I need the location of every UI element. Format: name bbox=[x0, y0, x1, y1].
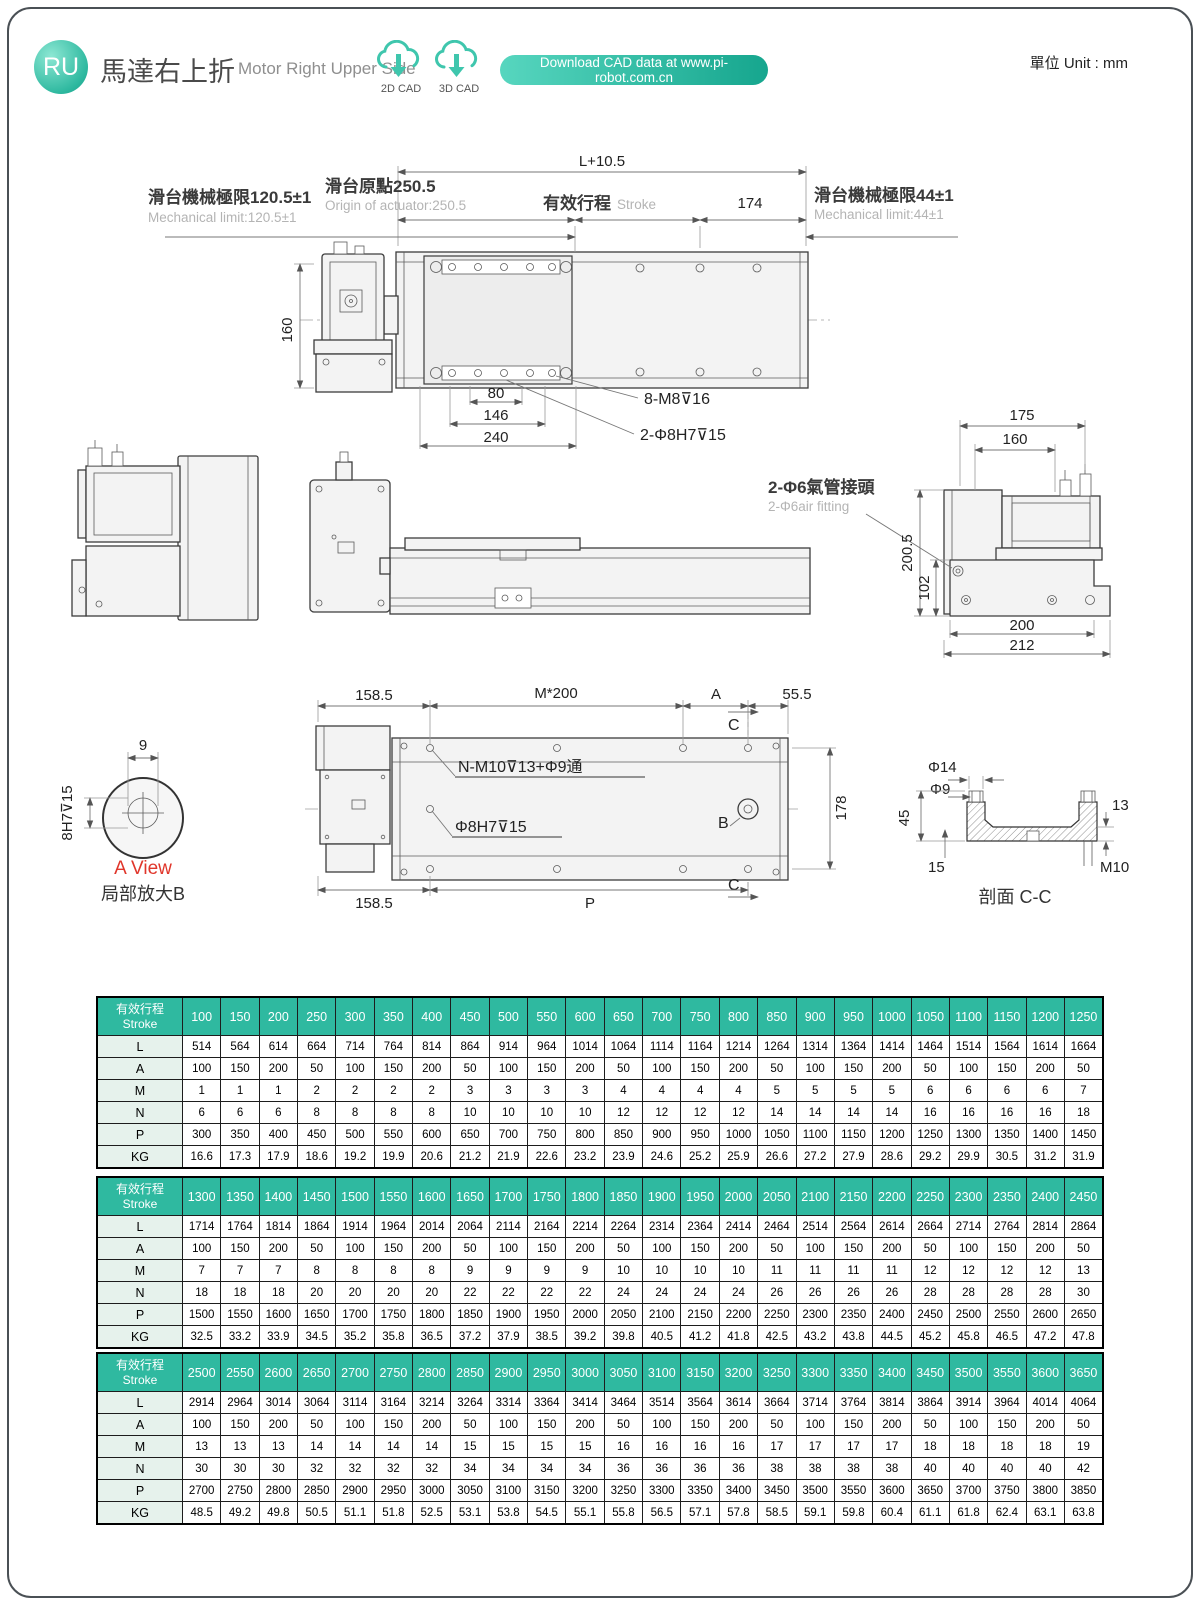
stroke-col-header: 3050 bbox=[604, 1353, 642, 1392]
value-cell: 32.5 bbox=[183, 1326, 221, 1349]
value-cell: 24 bbox=[643, 1282, 681, 1304]
value-cell: 19.2 bbox=[336, 1146, 374, 1169]
dim-158-5-top: 158.5 bbox=[355, 687, 393, 704]
value-cell: 13 bbox=[259, 1436, 297, 1458]
stroke-col-header: 3250 bbox=[758, 1353, 796, 1392]
row-label: L bbox=[97, 1216, 183, 1238]
value-cell: 6 bbox=[911, 1080, 949, 1102]
dim-total-length: L+10.5 bbox=[579, 153, 625, 170]
dim-178: 178 bbox=[833, 795, 850, 820]
value-cell: 10 bbox=[604, 1260, 642, 1282]
value-cell: 2200 bbox=[719, 1304, 757, 1326]
stroke-col-header: 3100 bbox=[643, 1353, 681, 1392]
value-cell: 800 bbox=[566, 1124, 604, 1146]
value-cell: 5 bbox=[796, 1080, 834, 1102]
value-cell: 3750 bbox=[988, 1480, 1026, 1502]
dim-p: P bbox=[585, 895, 595, 912]
table-row-m: M111222233334444555566667 bbox=[97, 1080, 1103, 1102]
value-cell: 50 bbox=[298, 1058, 336, 1080]
dim-160-vertical: 160 bbox=[279, 317, 296, 342]
row-label: N bbox=[97, 1102, 183, 1124]
value-cell: 41.2 bbox=[681, 1326, 719, 1349]
value-cell: 100 bbox=[336, 1414, 374, 1436]
value-cell: 14 bbox=[298, 1436, 336, 1458]
label-n-m10: N-M10⊽13+Φ9通 bbox=[458, 758, 583, 776]
value-cell: 53.8 bbox=[489, 1502, 527, 1525]
dim-15: 15 bbox=[928, 859, 945, 876]
value-cell: 3 bbox=[566, 1080, 604, 1102]
value-cell: 53.1 bbox=[451, 1502, 489, 1525]
value-cell: 2 bbox=[374, 1080, 412, 1102]
value-cell: 3414 bbox=[566, 1392, 604, 1414]
value-cell: 6 bbox=[221, 1102, 259, 1124]
value-cell: 2 bbox=[413, 1080, 451, 1102]
value-cell: 4064 bbox=[1064, 1392, 1103, 1414]
stroke-col-header: 2950 bbox=[528, 1353, 566, 1392]
value-cell: 1850 bbox=[451, 1304, 489, 1326]
value-cell: 2564 bbox=[834, 1216, 872, 1238]
value-cell: 150 bbox=[834, 1238, 872, 1260]
value-cell: 54.5 bbox=[528, 1502, 566, 1525]
value-cell: 3764 bbox=[834, 1392, 872, 1414]
value-cell: 100 bbox=[643, 1238, 681, 1260]
value-cell: 58.5 bbox=[758, 1502, 796, 1525]
value-cell: 18 bbox=[221, 1282, 259, 1304]
value-cell: 35.2 bbox=[336, 1326, 374, 1349]
value-cell: 6 bbox=[259, 1102, 297, 1124]
stroke-col-header: 3400 bbox=[873, 1353, 911, 1392]
value-cell: 34 bbox=[566, 1458, 604, 1480]
value-cell: 24.6 bbox=[643, 1146, 681, 1169]
stroke-col-header: 1650 bbox=[451, 1177, 489, 1216]
value-cell: 200 bbox=[873, 1058, 911, 1080]
value-cell: 200 bbox=[1026, 1414, 1064, 1436]
value-cell: 3200 bbox=[566, 1480, 604, 1502]
value-cell: 1300 bbox=[949, 1124, 987, 1146]
value-cell: 150 bbox=[988, 1238, 1026, 1260]
value-cell: 2800 bbox=[259, 1480, 297, 1502]
value-cell: 200 bbox=[413, 1238, 451, 1260]
label-phi8h7: Φ8H7⊽15 bbox=[455, 819, 527, 836]
value-cell: 29.2 bbox=[911, 1146, 949, 1169]
value-cell: 1414 bbox=[873, 1036, 911, 1058]
value-cell: 19.9 bbox=[374, 1146, 412, 1169]
front-view bbox=[310, 452, 810, 614]
bottom-view: 158.5 M*200 A 55.5 C C N-M10⊽13+Φ9通 Φ8H7… bbox=[305, 685, 850, 912]
value-cell: 20 bbox=[413, 1282, 451, 1304]
value-cell: 26 bbox=[758, 1282, 796, 1304]
stroke-col-header: 3600 bbox=[1026, 1353, 1064, 1392]
stroke-col-header: 300 bbox=[336, 997, 374, 1036]
value-cell: 2314 bbox=[643, 1216, 681, 1238]
table-row-p: P270027502800285029002950300030503100315… bbox=[97, 1480, 1103, 1502]
value-cell: 1614 bbox=[1026, 1036, 1064, 1058]
table-row-kg: KG48.549.249.850.551.151.852.553.153.854… bbox=[97, 1502, 1103, 1525]
dim-200: 200 bbox=[1009, 617, 1034, 634]
table-row-l: L514564614664714764814864914964101410641… bbox=[97, 1036, 1103, 1058]
value-cell: 50 bbox=[604, 1058, 642, 1080]
dim-phi9: Φ9 bbox=[930, 781, 950, 798]
value-cell: 100 bbox=[183, 1238, 221, 1260]
value-cell: 3300 bbox=[643, 1480, 681, 1502]
value-cell: 28.6 bbox=[873, 1146, 911, 1169]
value-cell: 100 bbox=[183, 1414, 221, 1436]
value-cell: 150 bbox=[834, 1058, 872, 1080]
value-cell: 614 bbox=[259, 1036, 297, 1058]
stroke-col-header: 1850 bbox=[604, 1177, 642, 1216]
value-cell: 38 bbox=[758, 1458, 796, 1480]
value-cell: 3314 bbox=[489, 1392, 527, 1414]
a-view-detail: 9 8H7⊽15 A View 局部放大B bbox=[59, 737, 185, 904]
value-cell: 25.2 bbox=[681, 1146, 719, 1169]
value-cell: 1114 bbox=[643, 1036, 681, 1058]
value-cell: 100 bbox=[183, 1058, 221, 1080]
row-label: A bbox=[97, 1238, 183, 1260]
value-cell: 6 bbox=[988, 1080, 1026, 1102]
table-row-a: A100150200501001502005010015020050100150… bbox=[97, 1238, 1103, 1260]
stroke-table-1: 有效行程Stroke100150200250300350400450500550… bbox=[96, 996, 1104, 1169]
value-cell: 10 bbox=[489, 1102, 527, 1124]
stroke-col-header: 150 bbox=[221, 997, 259, 1036]
value-cell: 8 bbox=[413, 1260, 451, 1282]
value-cell: 3114 bbox=[336, 1392, 374, 1414]
value-cell: 1864 bbox=[298, 1216, 336, 1238]
value-cell: 50 bbox=[911, 1238, 949, 1260]
table-row-kg: KG32.533.233.934.535.235.836.537.237.938… bbox=[97, 1326, 1103, 1349]
value-cell: 1514 bbox=[949, 1036, 987, 1058]
value-cell: 1700 bbox=[336, 1304, 374, 1326]
value-cell: 2350 bbox=[834, 1304, 872, 1326]
value-cell: 36 bbox=[681, 1458, 719, 1480]
stroke-col-header: 2250 bbox=[911, 1177, 949, 1216]
value-cell: 42 bbox=[1064, 1458, 1103, 1480]
value-cell: 50 bbox=[1064, 1058, 1103, 1080]
stroke-col-header: 1900 bbox=[643, 1177, 681, 1216]
value-cell: 50 bbox=[911, 1414, 949, 1436]
value-cell: 3964 bbox=[988, 1392, 1026, 1414]
value-cell: 11 bbox=[834, 1260, 872, 1282]
stroke-col-header: 2050 bbox=[758, 1177, 796, 1216]
value-cell: 11 bbox=[873, 1260, 911, 1282]
stroke-col-header: 2850 bbox=[451, 1353, 489, 1392]
value-cell: 17.9 bbox=[259, 1146, 297, 1169]
value-cell: 1264 bbox=[758, 1036, 796, 1058]
value-cell: 47.8 bbox=[1064, 1326, 1103, 1349]
stroke-col-header: 1500 bbox=[336, 1177, 374, 1216]
stroke-col-header: 2800 bbox=[413, 1353, 451, 1392]
value-cell: 32 bbox=[336, 1458, 374, 1480]
value-cell: 15 bbox=[528, 1436, 566, 1458]
value-cell: 32 bbox=[413, 1458, 451, 1480]
value-cell: 41.8 bbox=[719, 1326, 757, 1349]
value-cell: 1550 bbox=[221, 1304, 259, 1326]
value-cell: 50 bbox=[758, 1414, 796, 1436]
value-cell: 150 bbox=[681, 1058, 719, 1080]
value-cell: 36 bbox=[719, 1458, 757, 1480]
table-row-a: A100150200501001502005010015020050100150… bbox=[97, 1058, 1103, 1080]
value-cell: 200 bbox=[719, 1238, 757, 1260]
value-cell: 150 bbox=[374, 1058, 412, 1080]
stroke-col-header: 800 bbox=[719, 997, 757, 1036]
stroke-col-header: 3150 bbox=[681, 1353, 719, 1392]
value-cell: 3350 bbox=[681, 1480, 719, 1502]
value-cell: 100 bbox=[796, 1414, 834, 1436]
value-cell: 1200 bbox=[873, 1124, 911, 1146]
stroke-col-header: 3650 bbox=[1064, 1353, 1103, 1392]
value-cell: 100 bbox=[336, 1238, 374, 1260]
stroke-col-header: 3500 bbox=[949, 1353, 987, 1392]
value-cell: 28 bbox=[1026, 1282, 1064, 1304]
value-cell: 49.8 bbox=[259, 1502, 297, 1525]
origin-label-en: Origin of actuator:250.5 bbox=[325, 198, 466, 213]
value-cell: 1750 bbox=[374, 1304, 412, 1326]
value-cell: 10 bbox=[643, 1260, 681, 1282]
value-cell: 50 bbox=[451, 1058, 489, 1080]
dim-45: 45 bbox=[896, 810, 913, 827]
value-cell: 850 bbox=[604, 1124, 642, 1146]
value-cell: 150 bbox=[528, 1238, 566, 1260]
table-row-n: N666888810101010121212121414141416161616… bbox=[97, 1102, 1103, 1124]
value-cell: 3 bbox=[489, 1080, 527, 1102]
value-cell: 3500 bbox=[796, 1480, 834, 1502]
value-cell: 34 bbox=[528, 1458, 566, 1480]
value-cell: 31.2 bbox=[1026, 1146, 1064, 1169]
value-cell: 1350 bbox=[988, 1124, 1026, 1146]
value-cell: 27.2 bbox=[796, 1146, 834, 1169]
limit-left-zh: 滑台機械極限120.5±1 bbox=[148, 187, 311, 207]
value-cell: 100 bbox=[949, 1058, 987, 1080]
value-cell: 150 bbox=[221, 1058, 259, 1080]
value-cell: 3050 bbox=[451, 1480, 489, 1502]
value-cell: 3514 bbox=[643, 1392, 681, 1414]
label-2-phi8h7: 2-Φ8H7⊽15 bbox=[640, 427, 726, 444]
value-cell: 45.2 bbox=[911, 1326, 949, 1349]
value-cell: 52.5 bbox=[413, 1502, 451, 1525]
section-cc: Φ14 Φ9 45 15 13 M10 剖面 C-C bbox=[896, 759, 1129, 907]
stroke-col-header: 1400 bbox=[259, 1177, 297, 1216]
value-cell: 9 bbox=[489, 1260, 527, 1282]
stroke-col-header: 1250 bbox=[1064, 997, 1103, 1036]
stroke-col-header: 1550 bbox=[374, 1177, 412, 1216]
stroke-col-header: 1100 bbox=[949, 997, 987, 1036]
stroke-col-header: 2200 bbox=[873, 1177, 911, 1216]
value-cell: 18 bbox=[183, 1282, 221, 1304]
a-view-subtitle: 局部放大B bbox=[101, 884, 185, 904]
value-cell: 1400 bbox=[1026, 1124, 1064, 1146]
value-cell: 2700 bbox=[183, 1480, 221, 1502]
value-cell: 12 bbox=[988, 1260, 1026, 1282]
stroke-col-header: 1000 bbox=[873, 997, 911, 1036]
value-cell: 13 bbox=[221, 1436, 259, 1458]
value-cell: 664 bbox=[298, 1036, 336, 1058]
section-c-top: C bbox=[728, 717, 740, 734]
value-cell: 16 bbox=[604, 1436, 642, 1458]
value-cell: 100 bbox=[489, 1414, 527, 1436]
value-cell: 1464 bbox=[911, 1036, 949, 1058]
value-cell: 10 bbox=[451, 1102, 489, 1124]
value-cell: 32 bbox=[374, 1458, 412, 1480]
value-cell: 2050 bbox=[604, 1304, 642, 1326]
limit-right-en: Mechanical limit:44±1 bbox=[814, 207, 944, 222]
value-cell: 17 bbox=[796, 1436, 834, 1458]
value-cell: 2064 bbox=[451, 1216, 489, 1238]
value-cell: 1564 bbox=[988, 1036, 1026, 1058]
value-cell: 34 bbox=[489, 1458, 527, 1480]
value-cell: 12 bbox=[681, 1102, 719, 1124]
value-cell: 200 bbox=[1026, 1238, 1064, 1260]
value-cell: 150 bbox=[221, 1238, 259, 1260]
stroke-col-header: 3550 bbox=[988, 1353, 1026, 1392]
value-cell: 2914 bbox=[183, 1392, 221, 1414]
value-cell: 23.2 bbox=[566, 1146, 604, 1169]
value-cell: 44.5 bbox=[873, 1326, 911, 1349]
value-cell: 150 bbox=[528, 1058, 566, 1080]
value-cell: 15 bbox=[489, 1436, 527, 1458]
value-cell: 26 bbox=[796, 1282, 834, 1304]
row-label: N bbox=[97, 1458, 183, 1480]
value-cell: 26 bbox=[834, 1282, 872, 1304]
value-cell: 56.5 bbox=[643, 1502, 681, 1525]
dim-13: 13 bbox=[1112, 797, 1129, 814]
value-cell: 47.2 bbox=[1026, 1326, 1064, 1349]
value-cell: 14 bbox=[873, 1102, 911, 1124]
value-cell: 2100 bbox=[643, 1304, 681, 1326]
value-cell: 22 bbox=[566, 1282, 604, 1304]
value-cell: 6 bbox=[949, 1080, 987, 1102]
stroke-col-header: 1200 bbox=[1026, 997, 1064, 1036]
value-cell: 1050 bbox=[758, 1124, 796, 1146]
value-cell: 2814 bbox=[1026, 1216, 1064, 1238]
stroke-col-header: 750 bbox=[681, 997, 719, 1036]
value-cell: 30 bbox=[1064, 1282, 1103, 1304]
table-row-l: L171417641814186419141964201420642114216… bbox=[97, 1216, 1103, 1238]
value-cell: 8 bbox=[374, 1260, 412, 1282]
value-cell: 16 bbox=[643, 1436, 681, 1458]
left-end-view bbox=[72, 440, 258, 620]
value-cell: 16 bbox=[949, 1102, 987, 1124]
value-cell: 150 bbox=[374, 1238, 412, 1260]
value-cell: 30 bbox=[183, 1458, 221, 1480]
value-cell: 34 bbox=[451, 1458, 489, 1480]
value-cell: 3 bbox=[528, 1080, 566, 1102]
air-fitting-zh: 2-Φ6氣管接頭 bbox=[768, 477, 876, 497]
stroke-col-header: 2400 bbox=[1026, 1177, 1064, 1216]
value-cell: 3664 bbox=[758, 1392, 796, 1414]
value-cell: 600 bbox=[413, 1124, 451, 1146]
value-cell: 2900 bbox=[336, 1480, 374, 1502]
value-cell: 60.4 bbox=[873, 1502, 911, 1525]
value-cell: 42.5 bbox=[758, 1326, 796, 1349]
value-cell: 9 bbox=[566, 1260, 604, 1282]
value-cell: 63.8 bbox=[1064, 1502, 1103, 1525]
value-cell: 32 bbox=[298, 1458, 336, 1480]
value-cell: 22.6 bbox=[528, 1146, 566, 1169]
table-row-n: N303030323232323434343436363636383838384… bbox=[97, 1458, 1103, 1480]
value-cell: 300 bbox=[183, 1124, 221, 1146]
value-cell: 2000 bbox=[566, 1304, 604, 1326]
value-cell: 1 bbox=[183, 1080, 221, 1102]
value-cell: 200 bbox=[566, 1058, 604, 1080]
value-cell: 39.8 bbox=[604, 1326, 642, 1349]
value-cell: 12 bbox=[604, 1102, 642, 1124]
value-cell: 18.6 bbox=[298, 1146, 336, 1169]
value-cell: 45.8 bbox=[949, 1326, 987, 1349]
value-cell: 764 bbox=[374, 1036, 412, 1058]
value-cell: 1250 bbox=[911, 1124, 949, 1146]
value-cell: 24 bbox=[681, 1282, 719, 1304]
value-cell: 40 bbox=[949, 1458, 987, 1480]
value-cell: 750 bbox=[528, 1124, 566, 1146]
value-cell: 37.9 bbox=[489, 1326, 527, 1349]
value-cell: 28 bbox=[911, 1282, 949, 1304]
value-cell: 51.1 bbox=[336, 1502, 374, 1525]
value-cell: 2964 bbox=[221, 1392, 259, 1414]
value-cell: 100 bbox=[489, 1058, 527, 1080]
value-cell: 3700 bbox=[949, 1480, 987, 1502]
value-cell: 200 bbox=[413, 1058, 451, 1080]
value-cell: 9 bbox=[451, 1260, 489, 1282]
value-cell: 22 bbox=[489, 1282, 527, 1304]
value-cell: 38.5 bbox=[528, 1326, 566, 1349]
value-cell: 3850 bbox=[1064, 1480, 1103, 1502]
value-cell: 14 bbox=[413, 1436, 451, 1458]
section-c-bottom: C bbox=[728, 877, 740, 894]
value-cell: 3100 bbox=[489, 1480, 527, 1502]
value-cell: 16 bbox=[911, 1102, 949, 1124]
value-cell: 57.8 bbox=[719, 1502, 757, 1525]
value-cell: 12 bbox=[719, 1102, 757, 1124]
label-b: B bbox=[718, 815, 729, 832]
stroke-col-header: 1600 bbox=[413, 1177, 451, 1216]
value-cell: 40 bbox=[911, 1458, 949, 1480]
value-cell: 8 bbox=[298, 1102, 336, 1124]
value-cell: 2950 bbox=[374, 1480, 412, 1502]
stroke-col-header: 3000 bbox=[566, 1353, 604, 1392]
dim-80: 80 bbox=[488, 385, 505, 402]
value-cell: 40 bbox=[1026, 1458, 1064, 1480]
value-cell: 50 bbox=[758, 1238, 796, 1260]
value-cell: 34.5 bbox=[298, 1326, 336, 1349]
stroke-table-3: 有效行程Stroke250025502600265027002750280028… bbox=[96, 1352, 1104, 1525]
value-cell: 2014 bbox=[413, 1216, 451, 1238]
value-cell: 514 bbox=[183, 1036, 221, 1058]
value-cell: 38 bbox=[796, 1458, 834, 1480]
value-cell: 24 bbox=[604, 1282, 642, 1304]
value-cell: 4 bbox=[719, 1080, 757, 1102]
stroke-col-header: 600 bbox=[566, 997, 604, 1036]
value-cell: 40 bbox=[988, 1458, 1026, 1480]
value-cell: 14 bbox=[834, 1102, 872, 1124]
value-cell: 2214 bbox=[566, 1216, 604, 1238]
stroke-col-header: 1050 bbox=[911, 997, 949, 1036]
value-cell: 61.1 bbox=[911, 1502, 949, 1525]
value-cell: 2264 bbox=[604, 1216, 642, 1238]
value-cell: 21.9 bbox=[489, 1146, 527, 1169]
stroke-col-header: 200 bbox=[259, 997, 297, 1036]
dim-phi14: Φ14 bbox=[928, 759, 957, 776]
value-cell: 16.6 bbox=[183, 1146, 221, 1169]
value-cell: 37.2 bbox=[451, 1326, 489, 1349]
value-cell: 33.9 bbox=[259, 1326, 297, 1349]
section-cc-title: 剖面 C-C bbox=[979, 887, 1052, 907]
value-cell: 12 bbox=[1026, 1260, 1064, 1282]
value-cell: 3014 bbox=[259, 1392, 297, 1414]
value-cell: 200 bbox=[1026, 1058, 1064, 1080]
value-cell: 20 bbox=[336, 1282, 374, 1304]
stroke-header-cell: 有效行程Stroke bbox=[97, 997, 183, 1036]
value-cell: 11 bbox=[796, 1260, 834, 1282]
stroke-col-header: 1700 bbox=[489, 1177, 527, 1216]
